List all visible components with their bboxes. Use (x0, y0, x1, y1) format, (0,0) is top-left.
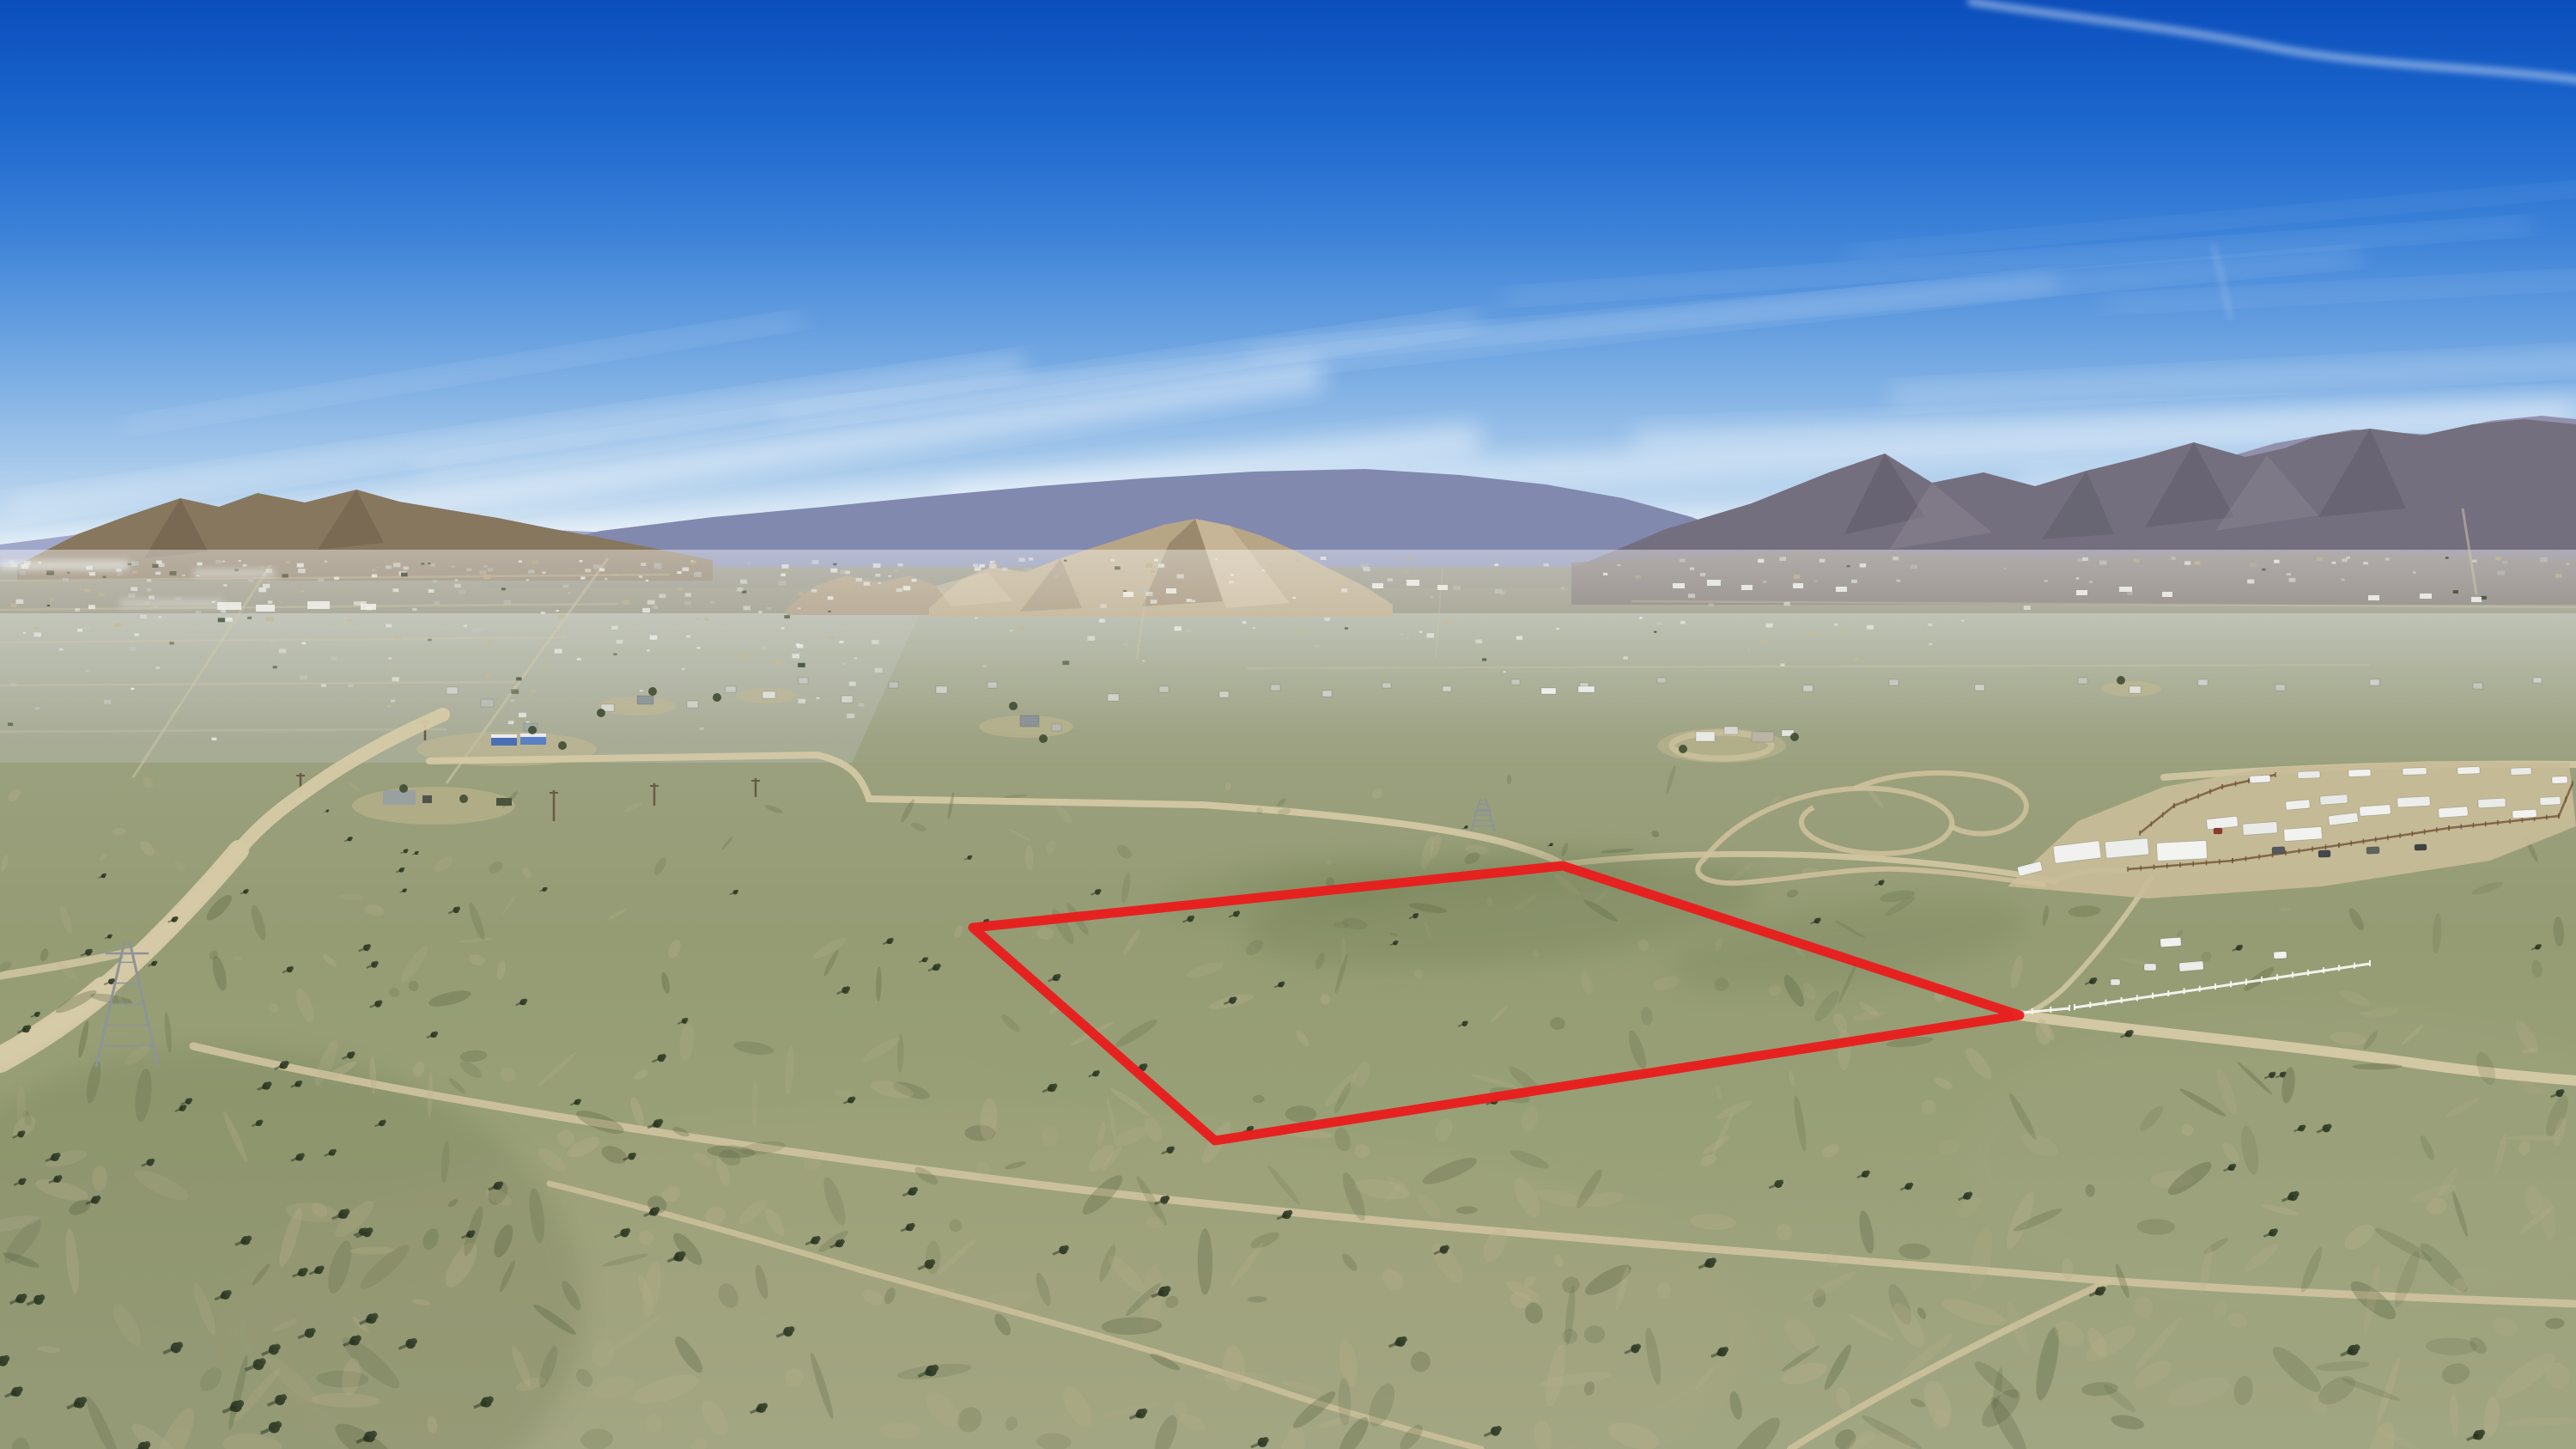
house (1696, 732, 1715, 741)
house (2370, 679, 2379, 685)
house (799, 678, 808, 684)
rv-trailer (2320, 795, 2348, 805)
house (1578, 686, 1595, 692)
house (841, 696, 853, 703)
house (1724, 727, 1738, 734)
house (1052, 724, 1061, 731)
house (687, 701, 698, 708)
house (2078, 678, 2087, 684)
house (1803, 685, 1813, 691)
rv-trailer (2439, 807, 2469, 818)
house (2275, 685, 2285, 691)
house (637, 696, 653, 704)
house (1541, 688, 1556, 694)
rv-trailer (2403, 768, 2427, 776)
house (889, 682, 898, 688)
house (936, 686, 947, 693)
rv-trailer (2160, 937, 2182, 947)
rv-trailer (2415, 844, 2427, 850)
rv-trailer (2348, 770, 2371, 777)
house (1219, 691, 1229, 697)
house (726, 686, 736, 692)
house (447, 687, 458, 694)
house (1108, 694, 1119, 701)
rv-trailer (2243, 822, 2278, 836)
rv-trailer (2360, 805, 2391, 816)
shed (422, 795, 432, 803)
rv-trailer (2552, 776, 2567, 784)
aerial-photo (0, 0, 2576, 1449)
house (2129, 686, 2141, 693)
rv-trailer (2274, 952, 2287, 959)
rv-trailer (2298, 771, 2320, 779)
aerial-photo-canvas (0, 0, 2576, 1449)
house (1752, 732, 1774, 742)
house (1975, 685, 1984, 691)
blue-trailer (491, 734, 517, 746)
house (481, 699, 494, 707)
house (1511, 679, 1520, 685)
rv-trailer (2511, 768, 2531, 776)
ranch-house (383, 790, 416, 805)
rv-trailer (2318, 850, 2330, 857)
rv-trailer (2458, 767, 2480, 775)
house (1271, 685, 1280, 691)
house (1889, 679, 1899, 685)
house (762, 691, 775, 698)
rv-trailer (2512, 809, 2537, 818)
rv-trailer (2156, 840, 2207, 861)
rv-trailer (2111, 979, 2120, 985)
house (2473, 683, 2482, 689)
rv-trailer (2272, 847, 2285, 855)
house (2198, 679, 2208, 685)
house (1443, 686, 1451, 691)
house (2533, 678, 2542, 683)
rv-trailer (2366, 847, 2379, 855)
house (1322, 691, 1332, 697)
rv-trailer (2397, 796, 2431, 807)
rv-trailer (2286, 800, 2311, 810)
rv-trailer (2284, 826, 2323, 841)
house (1020, 715, 1039, 727)
house (1159, 686, 1169, 692)
rv-trailer (2540, 796, 2561, 805)
rv-trailer (2105, 838, 2148, 858)
rv-trailer (2478, 798, 2506, 808)
rv-trailer (2144, 964, 2156, 971)
rv-trailer (2250, 775, 2270, 782)
house (1382, 683, 1391, 688)
rv-trailer (2214, 828, 2222, 834)
house (1657, 678, 1666, 683)
rv-trailer (2179, 961, 2204, 971)
blue-trailer (520, 734, 546, 745)
house (987, 682, 997, 688)
